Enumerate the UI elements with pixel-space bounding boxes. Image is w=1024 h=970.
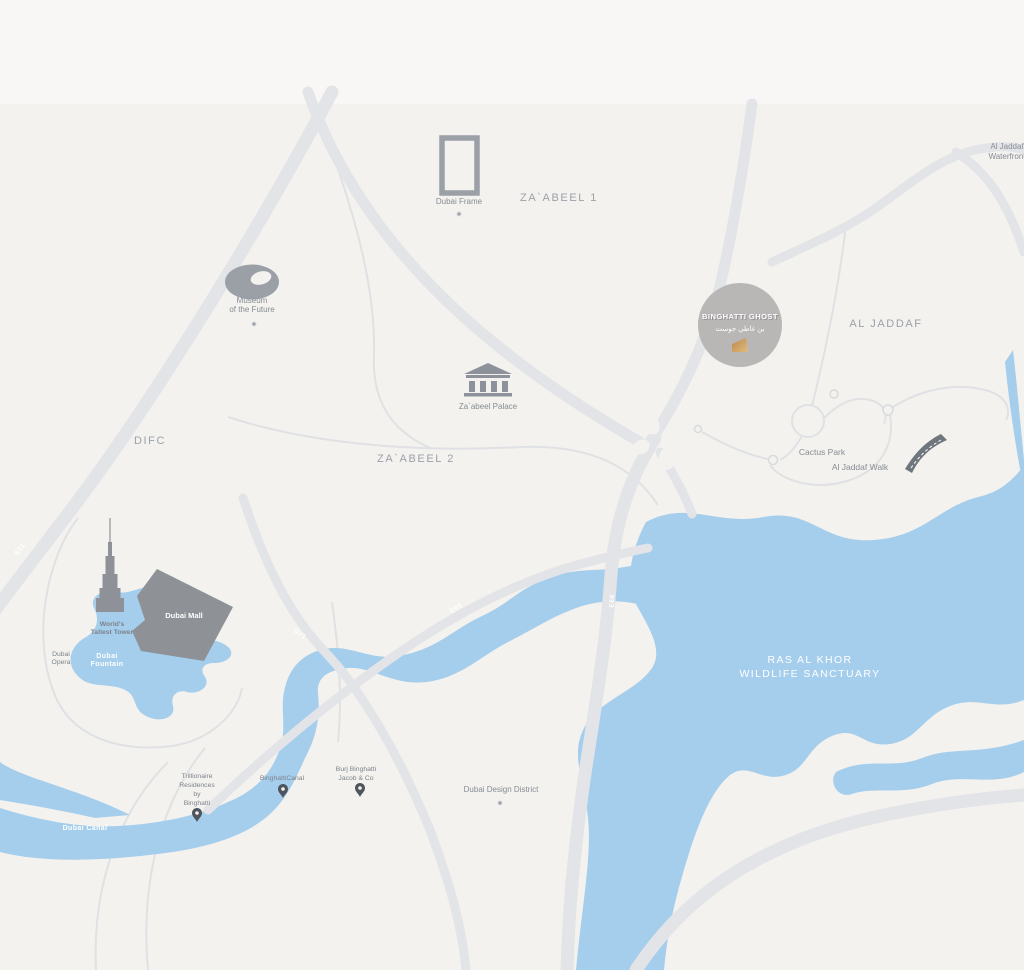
al-jaddaf-walk-label: Al Jaddaf Walk: [832, 462, 889, 472]
district-zaabeel2: ZA`ABEEL 2: [377, 453, 455, 465]
dubai-mall-label: Dubai Mall: [165, 611, 203, 620]
zaabeel-palace-label: Za`abeel Palace: [459, 402, 518, 411]
dubai-frame-label: Dubai Frame: [436, 197, 483, 206]
district-difc: DIFC: [134, 435, 166, 447]
al-jaddaf-waterfront-label-2: Waterfront: [988, 152, 1024, 161]
dubai-canal-label: Dubai Canal: [63, 825, 108, 832]
trillionaire-label-1: Trillionaire: [181, 773, 212, 780]
ras-al-khor-label-2: WILDLIFE SANCTUARY: [739, 668, 880, 680]
dubai-fountain-label-1: Dubai: [96, 653, 117, 660]
dubai-frame-dot[interactable]: [457, 212, 461, 216]
map-svg: E11 D71 D69 E66 Dubai Mall World's Talle…: [0, 0, 1024, 970]
roundabout: [883, 405, 893, 415]
highlight-subtitle-arabic: بن غاطي جوست: [715, 326, 764, 333]
highlight-circle[interactable]: [698, 283, 782, 367]
dubai-design-district-dot[interactable]: [498, 801, 502, 805]
district-zaabeel1: ZA`ABEEL 1: [520, 192, 598, 204]
dubai-design-district-label: Dubai Design District: [464, 785, 539, 794]
dubai-location-map: E11 D71 D69 E66 Dubai Mall World's Talle…: [0, 0, 1024, 970]
roundabout: [769, 456, 778, 465]
roundabout: [695, 426, 702, 433]
binghatti-canal-label: BinghattiCanal: [260, 775, 305, 782]
al-jaddaf-waterfront-label-1: Al Jaddaf: [990, 142, 1024, 151]
cactus-park-label: Cactus Park: [799, 447, 846, 457]
trillionaire-label-4: Binghatti: [184, 800, 211, 807]
worlds-tallest-label-1: World's: [100, 621, 125, 628]
museum-of-the-future-icon: [225, 265, 279, 300]
burj-binghatti-label-1: Burj Binghatti: [336, 766, 377, 773]
trillionaire-label-3: by: [193, 791, 201, 798]
worlds-tallest-label-2: Tallest Tower: [91, 629, 134, 636]
dubai-opera-label-1: Dubai: [52, 651, 70, 658]
roundabout: [830, 390, 838, 398]
district-al-jaddaf: AL JADDAF: [849, 318, 922, 330]
dubai-fountain-label-2: Fountain: [91, 661, 124, 668]
highlight-title: BINGHATTI GHOST: [702, 312, 778, 321]
burj-binghatti-label-2: Jacob & Co: [338, 775, 373, 782]
museum-label-2: of the Future: [229, 305, 275, 314]
ras-al-khor-label-1: RAS AL KHOR: [767, 654, 852, 666]
museum-dot[interactable]: [252, 322, 256, 326]
museum-label-1: Museum: [237, 296, 268, 305]
road-label-e66: E66: [609, 594, 617, 608]
trillionaire-label-2: Residences: [179, 782, 215, 789]
dubai-opera-label-2: Opera: [52, 659, 71, 666]
binghatti-ghost-highlight[interactable]: BINGHATTI GHOST BINGHATTI GHOST بن غاطي …: [698, 283, 782, 367]
